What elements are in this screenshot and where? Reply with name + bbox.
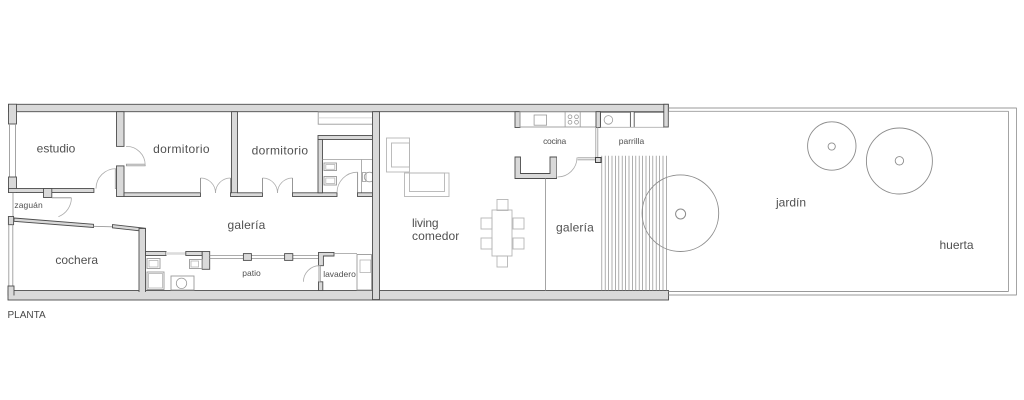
svg-text:PLANTA: PLANTA — [8, 310, 46, 321]
svg-text:estudio: estudio — [37, 142, 76, 156]
svg-text:cochera: cochera — [55, 253, 98, 267]
svg-text:cocina: cocina — [543, 136, 566, 146]
svg-text:lavadero: lavadero — [323, 269, 356, 279]
svg-text:patio: patio — [242, 268, 261, 278]
svg-text:living: living — [412, 216, 438, 230]
svg-text:jardín: jardín — [775, 196, 806, 210]
svg-text:huerta: huerta — [939, 238, 973, 252]
svg-text:galería: galería — [556, 220, 594, 234]
svg-text:zaguán: zaguán — [14, 200, 43, 210]
svg-text:parrilla: parrilla — [619, 136, 645, 146]
svg-text:galería: galería — [228, 218, 266, 232]
svg-text:dormitorio: dormitorio — [252, 144, 309, 158]
svg-text:dormitorio: dormitorio — [153, 142, 210, 156]
svg-text:comedor: comedor — [412, 229, 459, 243]
